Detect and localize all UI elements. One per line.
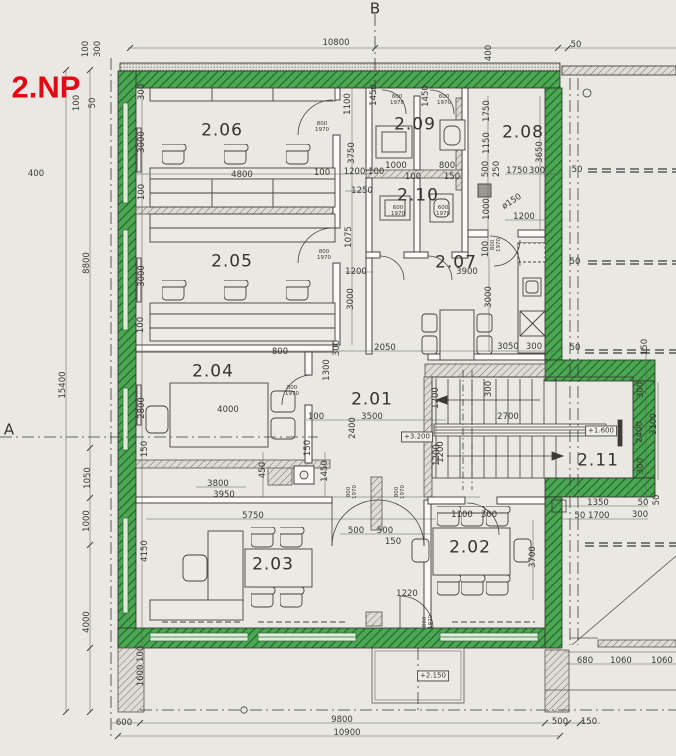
dimension-label: 3000 [347, 288, 356, 310]
dimension-label: 1200 [513, 213, 535, 222]
dimension-label: 10900 [333, 729, 360, 738]
dimension-label: 150 [385, 538, 401, 547]
dimension-label: 300 [485, 381, 494, 397]
elevation-marker: +3.200 [401, 431, 433, 442]
room-number-label: 2.01 [351, 392, 393, 409]
dimension-label: 1300 [323, 359, 332, 381]
dimension-label: 1000 [483, 198, 492, 220]
room-number-label: 2.03 [252, 557, 294, 574]
dimension-label: 1200 100 [344, 168, 385, 177]
dimension-label: 3900 [456, 268, 478, 277]
dimension-label: 8800 [83, 252, 92, 274]
dimension-label: 100 [314, 169, 330, 178]
elevation-marker: +1.600 [585, 425, 617, 436]
dimension-label: 300 [632, 511, 648, 520]
dimension-label: 150 [444, 173, 460, 182]
dimension-label: 1060 [610, 657, 632, 666]
annotation-layer: 2.062.092.082.102.052.072.042.012.112.02… [0, 0, 676, 756]
dimension-label: 1000 [385, 162, 407, 171]
dimension-label: 500 [552, 718, 568, 727]
dimension-label: 1450 [370, 84, 379, 106]
floor-plan-sheet: 2.062.092.082.102.052.072.042.012.112.02… [0, 0, 676, 756]
dimension-label: 300 [94, 41, 103, 57]
dimension-label: 3950 [213, 491, 235, 500]
dimension-label: 1600 100 [137, 646, 146, 687]
dimension-label: 3000 [485, 286, 494, 308]
dimension-label: 100 [308, 413, 324, 422]
dimension-label: 15400 [59, 371, 68, 398]
dimension-label: 3050 [497, 343, 519, 352]
room-number-label: 2.08 [502, 125, 544, 142]
dimension-label: 500 [348, 527, 364, 536]
dimension-label: 680 [577, 657, 593, 666]
door-size-label: 800 1970 [347, 485, 359, 499]
dimension-label: 50 1700 [574, 512, 609, 521]
door-size-label: 600 1970 [436, 206, 450, 218]
dimension-label: 1450 [321, 460, 330, 482]
dimension-label: 600 [116, 719, 132, 728]
dimension-label: 100 [138, 184, 147, 200]
dimension-label: 150 [581, 718, 597, 727]
dimension-label: 4150 [141, 540, 150, 562]
door-size-label: 800 1970 [423, 615, 435, 629]
door-size-label: 800 1970 [315, 122, 329, 134]
dimension-label: 800 [272, 348, 288, 357]
dimension-label: 4000 [83, 611, 92, 633]
dimension-label: 5750 [242, 512, 264, 521]
dimension-label: 1750 [483, 100, 492, 122]
dimension-label: 4800 [231, 171, 253, 180]
room-number-label: 2.09 [394, 117, 436, 134]
door-size-label: 800 1970 [395, 485, 407, 499]
door-size-label: 600 1970 [437, 95, 451, 107]
dimension-label: 50 [572, 166, 583, 175]
room-number-label: 2.10 [397, 188, 439, 205]
dimension-label: 1100 [451, 511, 473, 520]
dimension-label: 100 [73, 95, 82, 111]
dimension-label: 500 [377, 527, 393, 536]
door-size-label: 600 1970 [391, 206, 405, 218]
dimension-label: 300 [138, 84, 147, 100]
room-number-label: 2.07 [435, 255, 477, 272]
dimension-label: 1350 [587, 499, 609, 508]
dimension-label: 3650 [536, 141, 545, 163]
dimension-label: 2050 [374, 344, 396, 353]
dimension-label: 1220 [396, 590, 418, 599]
dimension-label: 3000 [138, 265, 147, 287]
room-number-label: 2.04 [192, 364, 234, 381]
dimension-label: 3700 [529, 546, 538, 568]
dimension-label: 2400 [636, 421, 645, 443]
dimension-label: 300 [526, 343, 542, 352]
axis-label: A [4, 423, 14, 438]
room-number-label: 2.05 [211, 254, 253, 271]
dimension-label: 300 [333, 340, 342, 356]
dimension-label: 500 [482, 161, 491, 177]
dimension-label: 1060 [651, 657, 673, 666]
dimension-label: 1250 [351, 187, 373, 196]
dimension-label: 2800 [138, 397, 147, 419]
dimension-label: 450 [259, 462, 268, 478]
dimension-label: 300 [481, 511, 497, 520]
dimension-label: 3000 [138, 131, 147, 153]
axis-label: B [370, 2, 380, 17]
dimension-label: 300 [637, 458, 646, 474]
dimension-label: 3500 [361, 413, 383, 422]
dimension-label: 150 [641, 339, 650, 355]
dimension-label: 1450 [422, 85, 431, 107]
dimension-label: 3750 [348, 142, 357, 164]
dimension-label: 250 [493, 161, 502, 177]
dimension-label: 300 [637, 382, 646, 398]
dimension-label: 50 [89, 98, 98, 109]
dimension-label: 1150 [483, 132, 492, 154]
dimension-label: 4000 [217, 406, 239, 415]
dimension-label: 400 [28, 170, 44, 179]
dimension-label: 100 [405, 173, 421, 182]
door-size-label: 800 1970 [285, 386, 299, 398]
dimension-label: 1200 [433, 444, 442, 466]
dimension-label: 150 [141, 441, 150, 457]
dimension-label: 100 [82, 41, 91, 57]
dimension-label: 300 [529, 167, 545, 176]
dimension-label: 100 [482, 241, 491, 257]
dimension-label: 50 [571, 41, 582, 50]
door-size-label: 800 1970 [317, 250, 331, 262]
dimension-label: 50 [638, 499, 649, 508]
door-size-label: 600 1970 [390, 95, 404, 107]
dimension-label: 3800 [207, 480, 229, 489]
dimension-label: 9800 [331, 716, 353, 725]
room-number-label: 2.06 [201, 123, 243, 140]
dimension-label: 50 [570, 344, 581, 353]
door-size-label: 800 1970 [491, 238, 503, 252]
dimension-label: 1750 [506, 167, 528, 176]
dimension-label: 50 [570, 258, 581, 267]
dimension-label: 3100 [650, 413, 659, 435]
dimension-label: 2400 [349, 417, 358, 439]
dimension-label: 2700 [497, 413, 519, 422]
dimension-label: 1200 [437, 441, 446, 463]
dimension-label: 800 [439, 162, 455, 171]
dimension-label: 100 [137, 317, 146, 333]
dimension-label: 1200 [432, 387, 441, 409]
dimension-label: 50 [653, 495, 662, 506]
dimension-label: 150 [304, 440, 313, 456]
room-number-label: 2.11 [577, 453, 619, 470]
room-number-label: 2.02 [449, 540, 491, 557]
elevation-marker: +2.150 [417, 670, 449, 681]
dimension-label: 1050 [84, 467, 93, 489]
dimension-label: 10800 [322, 39, 349, 48]
dimension-label: ø150 [501, 193, 524, 212]
dimension-label: 1200 [345, 268, 367, 277]
dimension-label: 1100 [344, 93, 353, 115]
dimension-label: 1000 [83, 510, 92, 532]
dimension-label: 400 [485, 45, 494, 61]
dimension-label: 1075 [345, 226, 354, 248]
